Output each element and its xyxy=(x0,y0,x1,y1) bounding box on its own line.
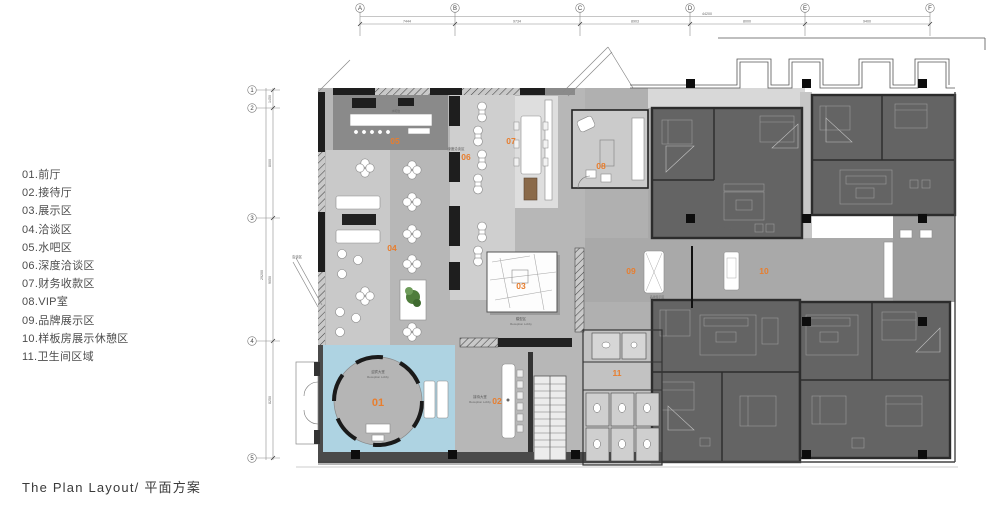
dim-overall-top: 44200 xyxy=(702,12,712,16)
room-label-06: 06 xyxy=(461,152,471,162)
balcony-strip xyxy=(648,88,805,108)
dim-text: 8000 xyxy=(743,20,751,24)
annotation: 户型平面图展示区 xyxy=(716,225,739,230)
sample-unit-4 xyxy=(800,302,950,458)
dim-text: 9734 xyxy=(513,20,521,24)
annotation: 迎宾大堂 xyxy=(371,369,385,374)
room-label-05: 05 xyxy=(390,136,400,146)
room-label-10: 10 xyxy=(759,266,769,276)
annotation: 接待大堂 xyxy=(473,394,487,399)
dim-text: 7444 xyxy=(403,20,411,24)
annotation: 品牌展示区 xyxy=(650,294,665,299)
annotation: 模型区 xyxy=(516,316,527,321)
grid-top: A B C D E F 7444 9734 8903 8000 9400 442… xyxy=(356,4,935,36)
room-label-02: 02 xyxy=(492,396,502,406)
room-label-01: 01 xyxy=(372,397,384,409)
room-label-03: 03 xyxy=(516,281,526,291)
sample-unit-3 xyxy=(652,300,800,462)
room-label-09: 09 xyxy=(626,266,636,276)
room-label-08: 08 xyxy=(596,161,606,171)
grid-bubble-b: B xyxy=(453,6,457,12)
dim-text: 1450 xyxy=(268,95,272,103)
sample-unit-2 xyxy=(812,95,955,215)
grid-bubble-f: F xyxy=(928,6,932,12)
vip-room xyxy=(572,110,648,188)
dim-text: 9050 xyxy=(268,276,272,284)
entry-vestibule xyxy=(296,362,320,444)
plan-layout-page: 01.前厅 02.接待厅 03.展示区 04.洽谈区 05.水吧区 06.深度洽… xyxy=(0,0,1000,512)
plant xyxy=(400,280,426,320)
dim-text: 8250 xyxy=(268,396,272,404)
floor-plan-drawing: A B C D E F 7444 9734 8903 8000 9400 442… xyxy=(0,0,1000,512)
grid-bubble-e: E xyxy=(803,6,807,12)
grid-left: 1 2 3 4 5 1450 8000 9050 8250 29200 xyxy=(248,86,280,463)
dim-text: 9400 xyxy=(863,20,871,24)
staircase xyxy=(534,376,566,460)
dim-text: 8903 xyxy=(631,20,639,24)
annotation: Reception Lobby xyxy=(367,375,389,379)
room-label-11: 11 xyxy=(613,368,622,378)
dim-text: 8000 xyxy=(268,159,272,167)
annotation: 深度洽谈区 xyxy=(448,146,466,151)
annotation: 洽谈区 xyxy=(292,254,303,259)
annotation: Reception Lobby xyxy=(510,322,532,326)
room-label-07: 07 xyxy=(506,136,516,146)
corridor-end-floor xyxy=(893,215,955,302)
grid-bubble-d: D xyxy=(688,6,693,12)
dim-overall-left: 29200 xyxy=(260,270,264,280)
annotation: Reception Lobby xyxy=(469,400,491,404)
grid-bubble-a: A xyxy=(358,6,362,12)
annotation: 水吧台 xyxy=(392,108,401,113)
grid-bubble-c: C xyxy=(578,6,583,12)
sample-unit-1 xyxy=(652,108,802,238)
room-label-04: 04 xyxy=(387,243,397,253)
